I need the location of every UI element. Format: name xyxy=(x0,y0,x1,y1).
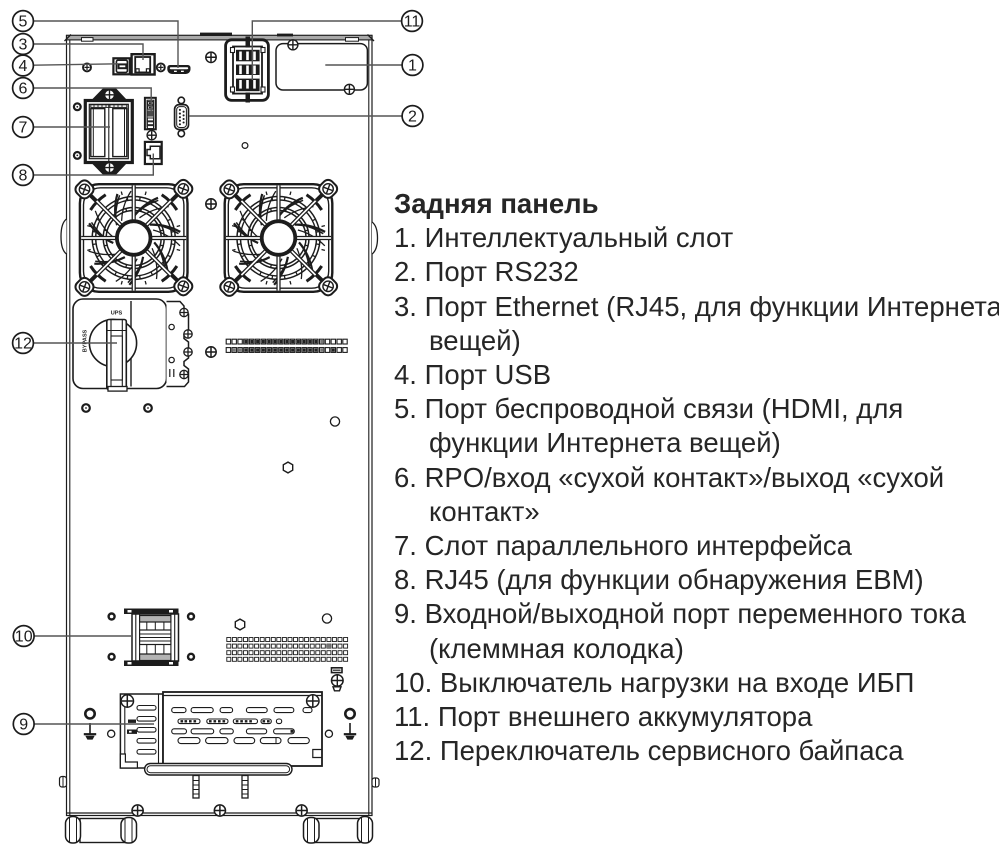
svg-text:6: 6 xyxy=(19,81,28,98)
svg-text:10: 10 xyxy=(15,629,33,646)
svg-text:8: 8 xyxy=(19,168,28,185)
svg-text:9: 9 xyxy=(19,717,28,734)
svg-text:7: 7 xyxy=(19,120,28,137)
svg-text:1: 1 xyxy=(408,58,417,75)
svg-text:2: 2 xyxy=(408,109,417,126)
svg-text:BYPASS: BYPASS xyxy=(83,329,89,352)
svg-text:UPS: UPS xyxy=(111,311,123,317)
svg-text:4: 4 xyxy=(19,58,28,75)
svg-text:12: 12 xyxy=(14,336,32,353)
svg-text:5: 5 xyxy=(19,14,28,31)
svg-text:11: 11 xyxy=(404,14,421,31)
svg-text:3: 3 xyxy=(19,37,28,54)
